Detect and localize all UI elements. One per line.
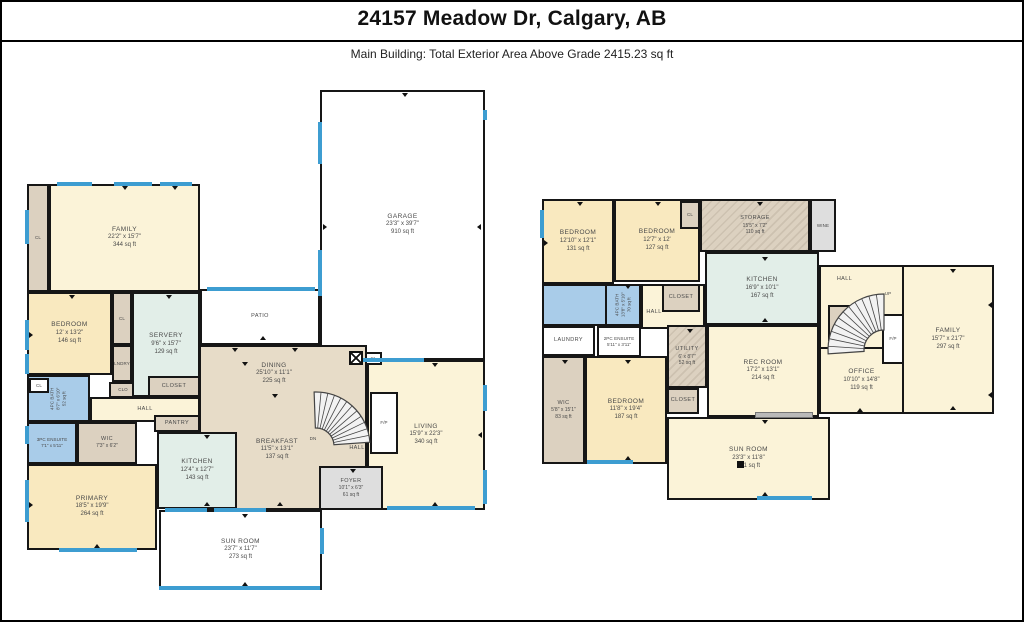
dimension-arrow-icon	[29, 502, 33, 508]
room-dimensions: 23'3" x 39'7"	[386, 221, 419, 229]
floorplan-page: 24157 Meadow Dr, Calgary, AB Main Buildi…	[0, 0, 1024, 622]
room-dimensions: 12' x 13'2"	[51, 330, 87, 338]
room-name: DINING	[256, 362, 292, 370]
room-pantry: PANTRY	[154, 415, 200, 432]
room-dimensions: 12'10" x 12'1"	[560, 238, 596, 246]
room-name: OFFICE	[843, 368, 879, 376]
window-strip	[362, 358, 424, 362]
room-dimensions: 11'5" x 13'1"	[256, 446, 298, 454]
room-garage: GARAGE23'3" x 39'7"910 sq ft	[320, 90, 485, 360]
room-closet: CLOSET	[148, 376, 200, 397]
room-bedroom: BEDROOM12' x 13'2"146 sq ft	[27, 292, 112, 375]
room-name: CLOSET	[669, 294, 693, 301]
room-area: 340 sq ft	[410, 439, 443, 447]
window-strip	[318, 250, 322, 296]
window-strip	[207, 287, 315, 291]
window-strip	[214, 508, 266, 512]
room-dimensions: 15'7" x 21'7"	[932, 336, 965, 344]
room-area: 297 sq ft	[932, 344, 965, 352]
room-area: 225 sq ft	[256, 378, 292, 386]
room-cl: CL	[680, 201, 700, 229]
label-dining: DINING25'10" x 11'1"225 sq ft	[199, 354, 349, 394]
dimension-arrow-icon	[478, 432, 482, 438]
room-dimensions: 18'5" x 19'9"	[76, 503, 109, 511]
window-strip	[483, 385, 487, 411]
window-strip	[57, 182, 92, 186]
room-name: STORAGE	[740, 215, 770, 222]
room-name: SUN ROOM	[221, 538, 260, 546]
room-cl: CL	[29, 378, 49, 393]
dimension-arrow-icon	[94, 544, 100, 548]
room-name: BREAKFAST	[256, 438, 298, 446]
room-name: WINE	[817, 223, 829, 229]
room-area: 214 sq ft	[744, 375, 783, 383]
window-strip	[159, 586, 320, 590]
dimension-arrow-icon	[204, 502, 210, 506]
room-name: CLOSET	[671, 397, 695, 404]
room-dimensions: 15'9" x 22'3"	[410, 431, 443, 439]
dimension-arrow-icon	[69, 295, 75, 299]
room-area: 110 sq ft	[740, 229, 770, 236]
room-area: 129 sq ft	[149, 349, 183, 357]
room-area: 264 sq ft	[76, 511, 109, 519]
room-name: DN	[310, 436, 317, 442]
window-strip	[318, 122, 322, 164]
label-hall: HALL	[822, 272, 867, 288]
dimension-arrow-icon	[29, 332, 33, 338]
room-name: KITCHEN	[746, 276, 779, 284]
room-name: WIC	[551, 400, 576, 407]
window-strip	[587, 460, 633, 464]
room-dimensions: 25'10" x 11'1"	[256, 370, 292, 378]
dimension-arrow-icon	[544, 240, 548, 246]
dimension-arrow-icon	[292, 348, 298, 352]
dimension-arrow-icon	[477, 224, 481, 230]
dimension-arrow-icon	[204, 435, 210, 439]
room-area: 61 sq ft	[339, 492, 364, 499]
window-strip	[25, 426, 29, 444]
room-laundry: LAUNDRY	[542, 326, 595, 356]
room-name: PRIMARY	[76, 495, 109, 503]
room-name: PATIO	[251, 313, 269, 320]
room-area: 52 sq ft	[61, 387, 67, 409]
room-name: BEDROOM	[51, 321, 87, 329]
room-name: FOYER	[339, 478, 364, 485]
room-name: KITCHEN	[181, 458, 214, 466]
room-name: BEDROOM	[608, 398, 644, 406]
room-family: FAMILY22'2" x 15'7"344 sq ft	[49, 184, 200, 292]
label-hall: HALL	[332, 442, 382, 456]
room-dimensions: 16'9" x 10'1"	[746, 285, 779, 293]
room-name: SERVERY	[149, 332, 183, 340]
room-area: 137 sq ft	[256, 454, 298, 462]
room-bedroom: BEDROOM12'10" x 12'1"131 sq ft	[542, 199, 614, 284]
room-name: 4PC BATH	[614, 293, 620, 318]
dimension-arrow-icon	[232, 348, 238, 352]
room-2pc-ensuite: 2PC ENSUITE5'11" x 3'11"	[597, 326, 641, 357]
room-dimensions: 10'1" x 6'3"	[339, 485, 364, 492]
room-storage: STORAGE15'5" x 7'2"110 sq ft	[700, 199, 810, 252]
dimension-arrow-icon	[950, 406, 956, 410]
dimension-arrow-icon	[625, 285, 631, 289]
room-utility: UTILITY6' x 8'7"52 sq ft	[667, 325, 707, 388]
room-cl: CL	[112, 292, 132, 345]
room-name: FAMILY	[932, 327, 965, 335]
page-subtitle: Main Building: Total Exterior Area Above…	[2, 47, 1022, 61]
dimension-arrow-icon	[272, 394, 278, 398]
room-dimensions: 12'4" x 12'7"	[181, 467, 214, 475]
room-lndry: LNDRY	[112, 345, 132, 382]
dimension-arrow-icon	[625, 360, 631, 364]
concrete-strip	[755, 412, 813, 418]
room-area: 910 sq ft	[386, 229, 419, 237]
dimension-arrow-icon	[762, 257, 768, 261]
room-dimensions: 10'10" x 14'8"	[843, 377, 879, 385]
dimension-arrow-icon	[242, 582, 248, 586]
room-name: CLO	[118, 387, 128, 393]
room-area: 119 sq ft	[843, 385, 879, 393]
room-area: 131 sq ft	[560, 246, 596, 254]
dimension-arrow-icon	[762, 492, 768, 496]
room-wic: WIC7'3" x 6'2"	[77, 422, 137, 464]
dimension-arrow-icon	[988, 392, 992, 398]
dimension-arrow-icon	[562, 360, 568, 364]
label-up: UP	[874, 288, 902, 300]
dimension-arrow-icon	[350, 469, 356, 473]
dimension-arrow-icon	[323, 224, 327, 230]
room-area: 344 sq ft	[108, 242, 141, 250]
room-name: CLOSET	[162, 383, 186, 390]
room-sun-room: SUN ROOM23'7" x 11'7"273 sq ft	[159, 510, 322, 590]
room-cl: CL	[27, 184, 49, 292]
window-strip	[25, 480, 29, 522]
room-name: SUN ROOM	[729, 446, 768, 454]
room-name: CL	[687, 212, 693, 218]
room-name: F/P	[889, 336, 896, 342]
room-name: GARAGE	[386, 213, 419, 221]
room-dimensions: 23'7" x 11'7"	[221, 546, 260, 554]
page-title: 24157 Meadow Dr, Calgary, AB	[2, 7, 1022, 31]
room-wine: WINE	[810, 199, 836, 252]
dimension-arrow-icon	[277, 502, 283, 506]
dimension-arrow-icon	[857, 408, 863, 412]
dimension-arrow-icon	[655, 202, 661, 206]
dimension-arrow-icon	[122, 186, 128, 190]
x-marker-icon	[349, 351, 363, 365]
dimension-arrow-icon	[172, 186, 178, 190]
room-dimensions: 9'6" x 15'7"	[149, 341, 183, 349]
room-name: WIC	[96, 436, 118, 443]
room-name: BEDROOM	[639, 228, 675, 236]
window-strip	[320, 528, 324, 554]
room-name: REC ROOM	[744, 359, 783, 367]
dimension-arrow-icon	[988, 302, 992, 308]
room-area: 273 sq ft	[221, 554, 260, 562]
room-name: HALL	[837, 276, 852, 283]
window-strip	[114, 182, 152, 186]
room-area: 83 sq ft	[551, 414, 576, 421]
dimension-arrow-icon	[625, 456, 631, 460]
dimension-arrow-icon	[762, 318, 768, 322]
room-dimensions: 12'7" x 12'	[639, 237, 675, 245]
dimension-arrow-icon	[166, 295, 172, 299]
dimension-arrow-icon	[762, 420, 768, 424]
dimension-arrow-icon	[242, 514, 248, 518]
room-name: UP	[885, 291, 891, 297]
room-name: LIVING	[410, 423, 443, 431]
room-name: FAMILY	[108, 226, 141, 234]
room-name: CL	[35, 235, 41, 241]
room-dimensions: 7'1" x 5'11"	[37, 443, 68, 449]
room-area: 187 sq ft	[608, 414, 644, 422]
label-hall: HALL	[624, 306, 684, 320]
dimension-arrow-icon	[577, 202, 583, 206]
dimension-arrow-icon	[432, 363, 438, 367]
room-dimensions: 17'2" x 13'1"	[744, 367, 783, 375]
window-strip	[165, 508, 207, 512]
room-name: HALL	[646, 309, 661, 316]
room-name: CL	[36, 383, 42, 389]
dimension-arrow-icon	[402, 93, 408, 97]
dimension-arrow-icon	[242, 362, 248, 366]
room-name: 2PC ENSUITE	[604, 336, 635, 342]
room-name: PANTRY	[165, 420, 189, 427]
window-strip	[25, 210, 29, 244]
room-name: F/P	[380, 420, 387, 426]
room-closet: CLOSET	[667, 388, 699, 414]
room-name: LAUNDRY	[554, 337, 583, 344]
room-area: 146 sq ft	[51, 338, 87, 346]
room-area: 271 sq ft	[729, 463, 768, 471]
window-strip	[59, 548, 137, 552]
room-dimensions: 5'11" x 3'11"	[604, 342, 635, 348]
room-area: 143 sq ft	[181, 475, 214, 483]
window-strip	[25, 354, 29, 374]
room-name: LNDRY	[114, 361, 130, 367]
room-name: BEDROOM	[560, 229, 596, 237]
room-name: CL	[119, 316, 125, 322]
room-dimensions: 11'8" x 19'4"	[608, 406, 644, 414]
room-primary: PRIMARY18'5" x 19'9"264 sq ft	[27, 464, 157, 550]
window-strip	[540, 210, 544, 238]
room-area	[542, 284, 607, 326]
label-dn: DN	[300, 434, 326, 444]
title-divider	[2, 40, 1022, 42]
window-strip	[483, 110, 487, 120]
dimension-arrow-icon	[950, 269, 956, 273]
window-strip	[483, 470, 487, 504]
dimension-arrow-icon	[432, 502, 438, 506]
room-3pc-ensuite: 3PC ENSUITE7'1" x 5'11"	[27, 422, 77, 464]
room-wic: WIC5'8" x 15'1"83 sq ft	[542, 356, 585, 464]
room-name: UTILITY	[675, 346, 698, 353]
window-strip	[757, 496, 812, 500]
room-sun-room: SUN ROOM23'3" x 11'8"271 sq ft	[667, 417, 830, 500]
room-kitchen: KITCHEN16'9" x 10'1"167 sq ft	[705, 252, 819, 325]
room-area: 52 sq ft	[675, 360, 698, 367]
room-dimensions: 23'3" x 11'8"	[729, 455, 768, 463]
sunroom-post-marker	[737, 461, 744, 468]
room-rec-room: REC ROOM17'2" x 13'1"214 sq ft	[707, 325, 819, 417]
room-area: 167 sq ft	[746, 293, 779, 301]
room-dimensions: 7'3" x 6'2"	[96, 443, 118, 450]
dimension-arrow-icon	[260, 336, 266, 340]
room-dimensions: 5'8" x 15'1"	[551, 407, 576, 414]
room-name: HALL	[137, 406, 152, 413]
room-family: FAMILY15'7" x 21'7"297 sq ft	[902, 265, 994, 414]
window-strip	[387, 506, 475, 510]
room-bedroom: BEDROOM11'8" x 19'4"187 sq ft	[585, 356, 667, 464]
dimension-arrow-icon	[757, 202, 763, 206]
room-dimensions: 22'2" x 15'7"	[108, 234, 141, 242]
room-area: 127 sq ft	[639, 245, 675, 253]
dimension-arrow-icon	[687, 329, 693, 333]
room-name: HALL	[349, 445, 364, 452]
